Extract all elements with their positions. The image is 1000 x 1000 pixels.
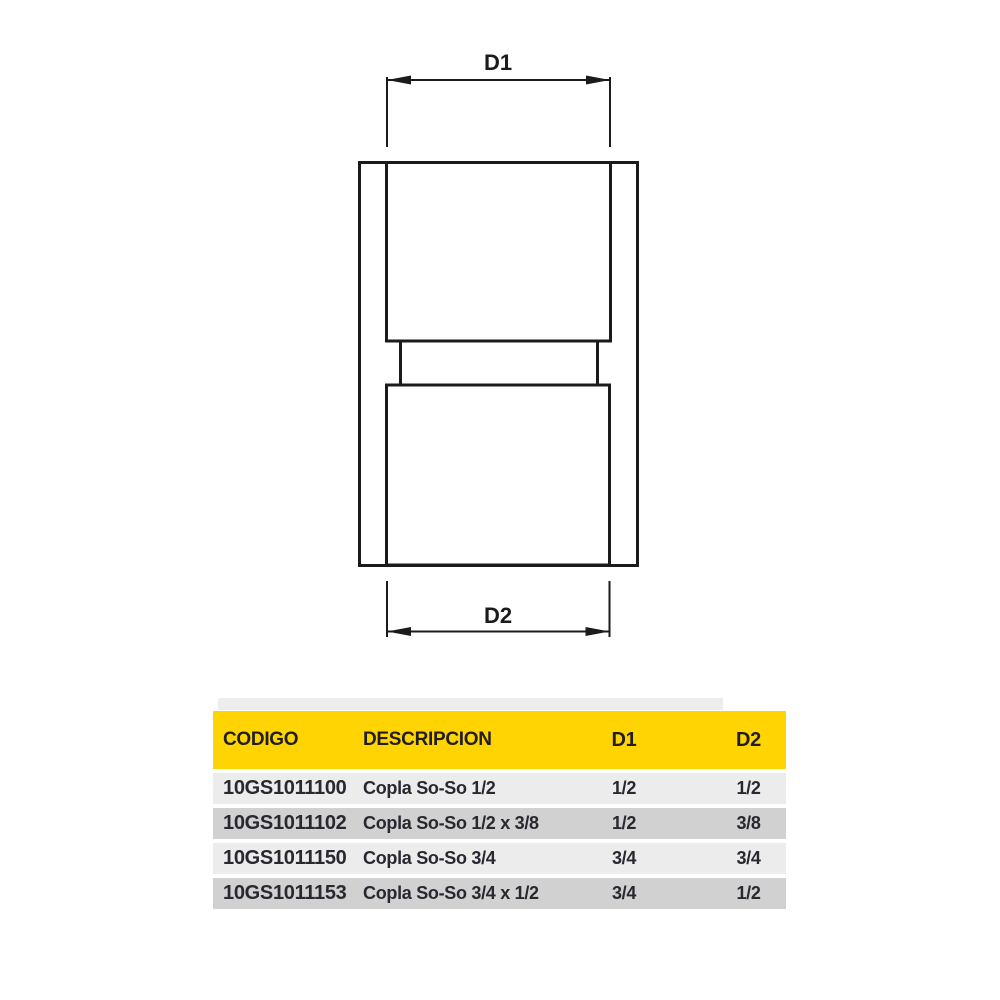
table-header-row: CODIGO DESCRIPCION D1 D2 — [213, 711, 786, 769]
cell-descripcion: Copla So-So 3/4 — [358, 848, 563, 869]
header-d2: D2 — [685, 729, 786, 752]
cell-d1: 1/2 — [563, 813, 685, 834]
table-row: 10GS1011102 Copla So-So 1/2 x 3/8 1/2 3/… — [213, 808, 786, 839]
cell-descripcion: Copla So-So 3/4 x 1/2 — [358, 883, 563, 904]
header-codigo: CODIGO — [213, 729, 358, 751]
cell-d2: 1/2 — [685, 883, 786, 904]
d2-dimension-label: D2 — [484, 603, 512, 628]
d1-dimension-label: D1 — [484, 50, 512, 75]
cell-descripcion: Copla So-So 1/2 x 3/8 — [358, 813, 563, 834]
coupling-diagram: D1 D2 — [0, 0, 1000, 680]
cell-d2: 1/2 — [685, 778, 786, 799]
d1-arrow-right — [586, 76, 610, 85]
spec-table: CODIGO DESCRIPCION D1 D2 10GS1011100 Cop… — [213, 698, 786, 909]
d1-arrow-left — [387, 76, 411, 85]
cell-codigo: 10GS1011102 — [213, 812, 358, 835]
coupling-top-socket — [387, 163, 611, 342]
catalog-page: D1 D2 CODIGO DESCRIPCION D1 D2 10GS10111… — [0, 0, 1000, 1000]
table-row: 10GS1011153 Copla So-So 3/4 x 1/2 3/4 1/… — [213, 878, 786, 909]
cell-d2: 3/4 — [685, 848, 786, 869]
cell-d1: 1/2 — [563, 778, 685, 799]
cell-d2: 3/8 — [685, 813, 786, 834]
d2-arrow-right — [586, 627, 610, 636]
table-top-strip — [218, 698, 723, 710]
coupling-middle-section — [401, 341, 598, 385]
cell-codigo: 10GS1011150 — [213, 847, 358, 870]
coupling-bottom-socket — [387, 385, 610, 565]
table-row: 10GS1011150 Copla So-So 3/4 3/4 3/4 — [213, 843, 786, 874]
header-descripcion: DESCRIPCION — [358, 729, 563, 751]
header-d1: D1 — [563, 729, 685, 752]
cell-d1: 3/4 — [563, 883, 685, 904]
cell-descripcion: Copla So-So 1/2 — [358, 778, 563, 799]
cell-codigo: 10GS1011100 — [213, 777, 358, 800]
cell-d1: 3/4 — [563, 848, 685, 869]
d2-arrow-left — [387, 627, 411, 636]
table-row: 10GS1011100 Copla So-So 1/2 1/2 1/2 — [213, 773, 786, 804]
cell-codigo: 10GS1011153 — [213, 882, 358, 905]
